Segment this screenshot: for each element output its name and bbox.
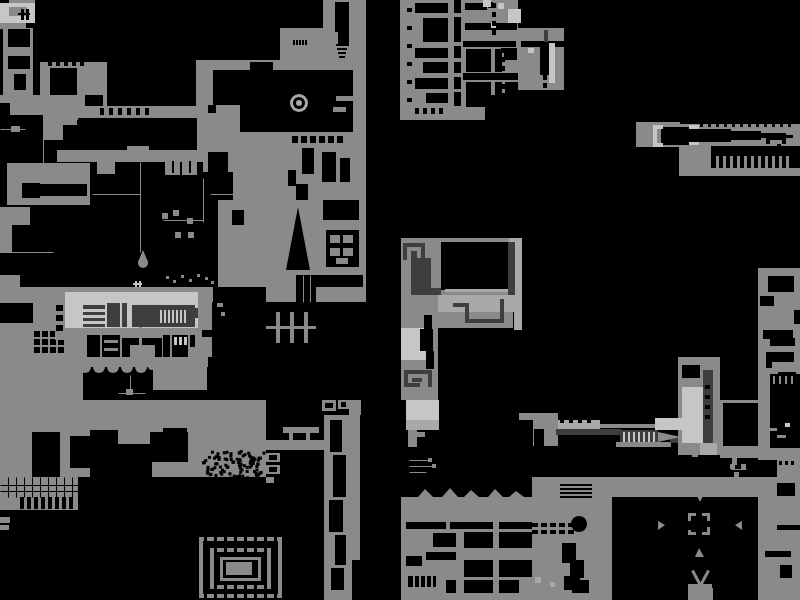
world-map-canvas bbox=[0, 0, 800, 600]
game-map-screen bbox=[0, 0, 800, 600]
